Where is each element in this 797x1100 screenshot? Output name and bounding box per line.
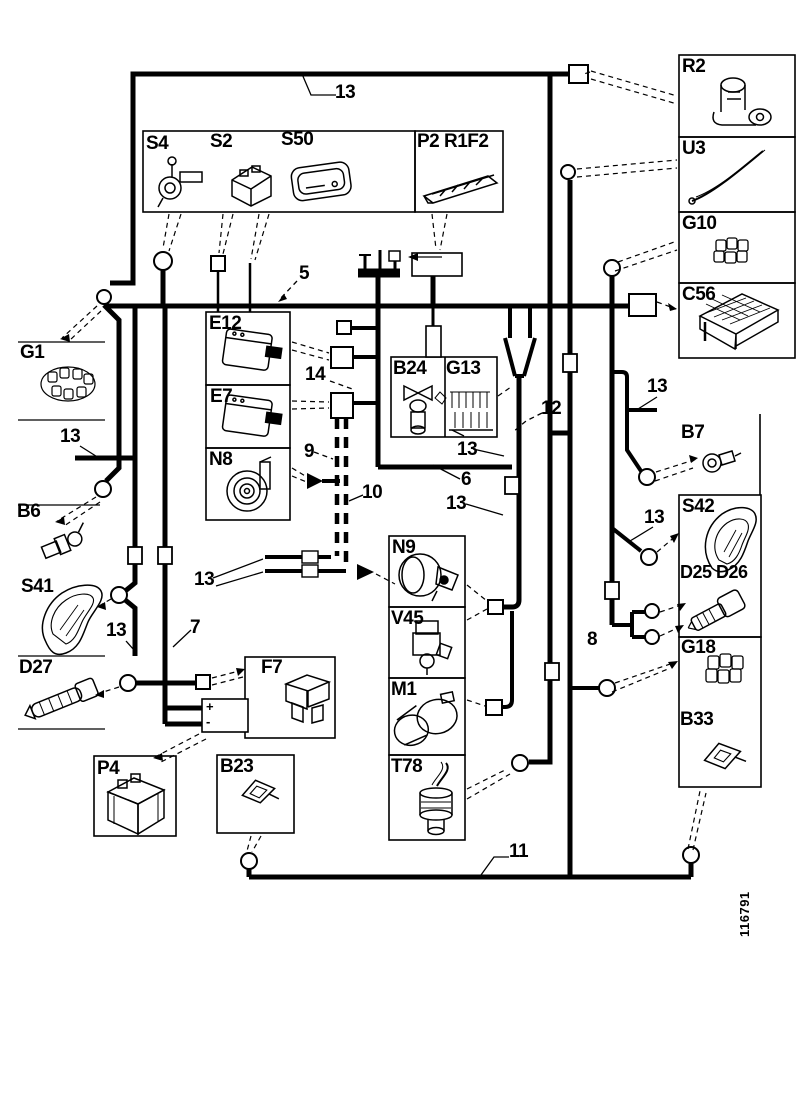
ring-connector — [561, 165, 575, 179]
label-n9: N9 — [392, 538, 415, 557]
wiring-diagram-page: S4 S2 S50 P2 R1F2 E12 E7 N8 B24 G13 N9 V… — [0, 0, 797, 1100]
label-v45: V45 — [391, 609, 423, 628]
label-e12: E12 — [209, 314, 241, 333]
wire-number-13: 13 — [457, 440, 477, 459]
branch-b7 — [612, 372, 641, 471]
label-s2: S2 — [210, 132, 232, 151]
ring-connector — [604, 260, 620, 276]
square-connector-e12 — [331, 347, 353, 368]
square-connector-c56 — [629, 294, 656, 316]
label-d27: D27 — [19, 658, 52, 677]
ring-connector — [639, 469, 655, 485]
wire-number-12: 12 — [541, 399, 561, 418]
label-s4: S4 — [146, 134, 168, 153]
t78-icon — [420, 762, 452, 835]
leader-13-s42 — [630, 527, 653, 541]
square-connector-e7 — [331, 393, 353, 418]
label-f7: F7 — [261, 658, 282, 677]
label-r2: R2 — [682, 57, 705, 76]
label-c56: C56 — [682, 285, 715, 304]
leader-13-top — [302, 74, 336, 95]
b24-inlet — [426, 326, 441, 357]
square-connector — [569, 65, 588, 83]
s2-icon — [232, 166, 271, 206]
leader-14 — [330, 381, 355, 390]
n8-icon — [227, 457, 271, 511]
drop-left-a — [124, 306, 135, 656]
label-g13: G13 — [446, 359, 480, 378]
label-b23: B23 — [220, 757, 253, 776]
label-t78: T78 — [391, 757, 422, 776]
wire-number-13: 13 — [106, 621, 126, 640]
label-n8: N8 — [209, 450, 232, 469]
ring-connector — [683, 847, 699, 863]
trident-cap — [389, 251, 400, 261]
terminal-feeds — [165, 708, 202, 724]
b33-icon — [701, 738, 746, 773]
wire-number-13: 13 — [194, 570, 214, 589]
dashed-harness — [337, 418, 346, 570]
label-b6: B6 — [17, 502, 40, 521]
e-connector-wires — [351, 328, 378, 403]
harness-bottom-bus — [249, 863, 691, 877]
dashed-leaders — [57, 71, 706, 852]
g13-icon — [435, 392, 493, 436]
square-connector — [211, 256, 225, 271]
funnel — [505, 306, 535, 376]
ring-connector — [645, 604, 659, 618]
ring-connector — [97, 290, 111, 304]
ring-connector — [154, 252, 172, 270]
label-d25d26: D25 D26 — [680, 563, 748, 581]
terminal-plus: + — [206, 700, 214, 713]
wire-number-5: 5 — [299, 264, 309, 283]
ring-connector — [120, 675, 136, 691]
leader-9 — [314, 452, 333, 459]
p4-icon — [108, 774, 164, 834]
wire-number-9: 9 — [304, 442, 314, 461]
s4-icon — [158, 157, 202, 207]
d27-icon — [21, 677, 99, 723]
label-p2r1f2: P2 R1F2 — [417, 132, 488, 151]
m1-icon — [389, 692, 462, 749]
b6-icon — [39, 523, 91, 560]
leader-13-b24 — [473, 449, 504, 456]
label-g18: G18 — [681, 638, 715, 657]
ring-connector — [111, 587, 127, 603]
part-number: 116791 — [737, 891, 752, 937]
drop-left-edge — [104, 305, 119, 481]
ring-connector — [241, 853, 257, 869]
label-s42: S42 — [682, 497, 714, 516]
leader-11 — [481, 857, 509, 875]
wire-number-14: 14 — [305, 365, 325, 384]
leader-13-pair — [213, 559, 263, 586]
d25d26-icon — [683, 589, 747, 636]
g18-icon — [706, 654, 743, 683]
g10-icon — [714, 238, 748, 263]
e12-icon — [222, 329, 283, 373]
ring-connector — [95, 481, 111, 497]
ring-connector — [512, 755, 528, 771]
wire-number-11: 11 — [509, 842, 528, 861]
label-m1: M1 — [391, 680, 416, 699]
s50-icon — [290, 161, 352, 202]
g1-icon — [41, 367, 95, 401]
wire-number-10: 10 — [362, 483, 382, 502]
frame-f7 — [245, 657, 335, 738]
v45-icon — [413, 621, 452, 675]
wire-number-13: 13 — [60, 427, 80, 446]
bracket-connector-n9 — [488, 600, 503, 614]
label-g1: G1 — [20, 343, 44, 362]
label-s50: S50 — [281, 130, 313, 149]
b7-icon — [703, 451, 741, 472]
b23-icon — [240, 776, 279, 806]
wire-number-13: 13 — [647, 377, 667, 396]
wire-number-13: 13 — [446, 494, 466, 513]
leader-10 — [349, 495, 363, 501]
label-s41: S41 — [21, 577, 53, 596]
bracket-connector-f7 — [196, 675, 210, 689]
wire-number-8: 8 — [587, 630, 597, 649]
f7-icon — [286, 675, 329, 723]
label-b24: B24 — [393, 359, 426, 378]
b24-icon — [404, 386, 432, 434]
branch-s42 — [612, 528, 641, 551]
square-connector — [337, 321, 351, 334]
leader-13-mid — [466, 504, 503, 515]
p2r1f2-icon — [424, 175, 497, 203]
branch-d25-d26 — [612, 612, 645, 637]
ring-connector — [645, 630, 659, 644]
ring-connector — [641, 549, 657, 565]
drop-m1 — [503, 611, 512, 707]
n9-icon — [399, 554, 458, 601]
r2-icon — [713, 78, 771, 125]
wire-number-13: 13 — [335, 83, 355, 102]
label-e7: E7 — [210, 387, 232, 406]
wire-number-6: 6 — [461, 470, 471, 489]
wire-number-13: 13 — [644, 508, 664, 527]
terminal-minus: - — [206, 715, 210, 728]
leader-7 — [173, 630, 191, 647]
label-b7: B7 — [681, 423, 704, 442]
leader-lines — [55, 71, 706, 875]
wire-number-7: 7 — [190, 618, 200, 637]
label-g10: G10 — [682, 214, 716, 233]
bracket-connector-m1 — [486, 700, 502, 715]
label-p4: P4 — [97, 759, 119, 778]
label-b33: B33 — [680, 710, 713, 729]
ring-connector — [599, 680, 615, 696]
label-u3: U3 — [682, 139, 705, 158]
leader-13-b7 — [638, 397, 657, 409]
